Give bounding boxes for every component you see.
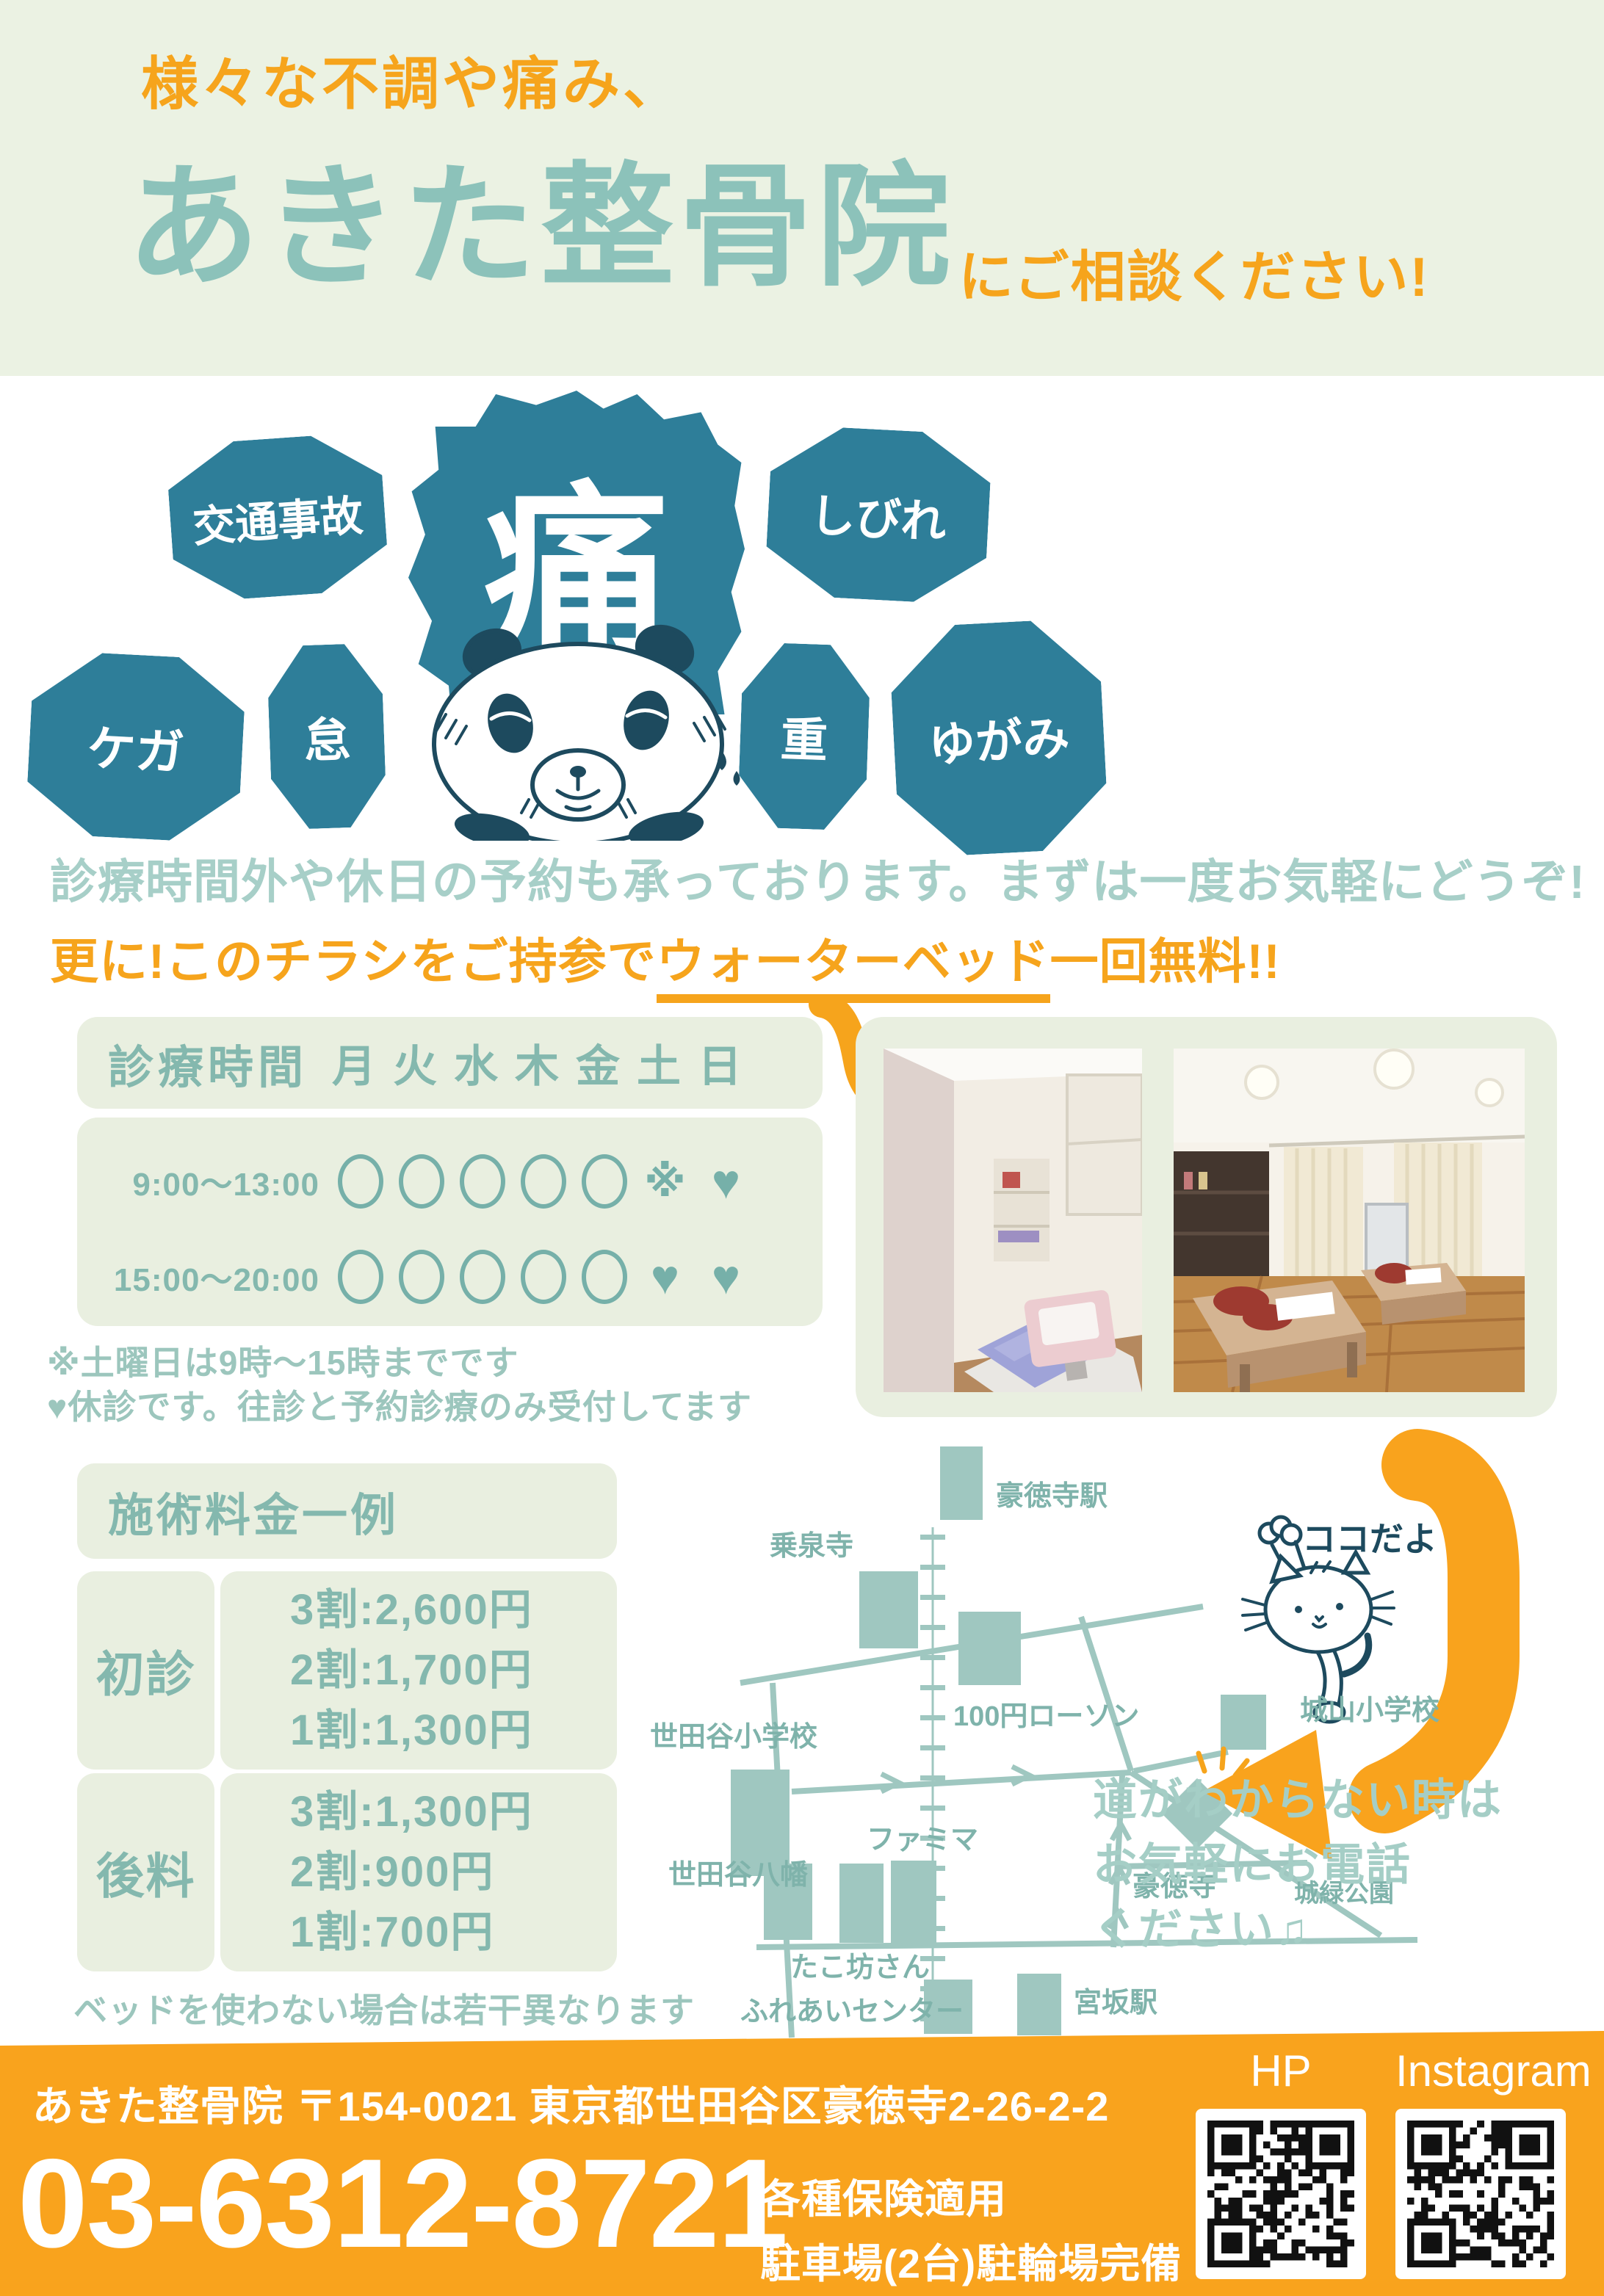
schedule-marks: ※♥ — [330, 1137, 756, 1226]
schedule-note-1: ※土曜日は9時〜15時までです — [47, 1341, 752, 1385]
schedule-day: 日 — [694, 1017, 745, 1109]
closed-heart-mark: ♥ — [696, 1137, 756, 1226]
header-band: 様々な不調や痛み、 あきた整骨院 にご相談ください! — [0, 0, 1604, 376]
koko-dayo-label: ココだよ — [1302, 1520, 1437, 1558]
open-day-mark — [391, 1137, 452, 1226]
pricing-title: 施術料金一例 — [108, 1478, 399, 1544]
schedule-card-header: 診療時間 月火水木金土日 — [77, 1017, 823, 1109]
clinic-photo-waterbed — [884, 1049, 1142, 1392]
intro-line-1: 診療時間外や休日の予約も承っております。まずは一度お気軽にどうぞ! — [50, 844, 1586, 912]
intro-line-2-prefix: 更に!このチラシをご持参で — [50, 934, 657, 988]
map-label-gotokuji-station: 豪徳寺駅 — [996, 1481, 1108, 1512]
pricing-row-followup: 後料 3割:1,300円 2割:900円 1割:700円 — [77, 1773, 617, 1971]
open-day-mark — [330, 1137, 391, 1226]
badge-heaviness: 重 — [737, 642, 872, 831]
schedule-day: 土 — [633, 1017, 684, 1109]
pricing-row-first-visit: 初診 3割:2,600円 2割:1,700円 1割:1,300円 — [77, 1571, 617, 1770]
open-day-mark — [574, 1232, 635, 1322]
schedule-marks: ♥♥ — [330, 1232, 756, 1322]
pricing-label: 初診 — [77, 1571, 214, 1770]
instagram-label: Instagram — [1395, 2046, 1566, 2096]
tagline: 様々な不調や痛み、 — [141, 38, 683, 120]
consult-suffix: にご相談ください! — [958, 232, 1429, 312]
panda-mascot-illustration — [408, 620, 753, 841]
schedule-day: 火 — [389, 1017, 441, 1109]
pricing-note: ベッドを使わない場合は若干異なります — [73, 1984, 695, 2032]
schedule-row: 15:00〜20:00 ♥♥ — [77, 1232, 823, 1322]
badge-numbness: しびれ — [764, 424, 993, 605]
map-label-setagaya-hachiman: 世田谷八幡 — [668, 1860, 808, 1891]
schedule-day: 木 — [511, 1017, 563, 1109]
open-day-mark — [513, 1137, 574, 1226]
footer-phone: 03-6312-8721 — [18, 2131, 787, 2276]
map-help-text: 道がわからない時は お気軽にお電話 ください♫ — [1093, 1768, 1503, 1962]
map-label-setagaya-elementary: 世田谷小学校 — [650, 1721, 817, 1753]
open-day-mark — [452, 1232, 513, 1322]
map-label-lawson: 100円ローソン — [953, 1701, 1139, 1732]
intro-line-2: 更に!このチラシをご持参でウォーターベッド一回無料!! — [50, 922, 1281, 993]
pricing-header: 施術料金一例 — [77, 1463, 617, 1559]
open-day-mark — [452, 1137, 513, 1226]
pricing-values: 3割:1,300円 2割:900円 1割:700円 — [220, 1773, 617, 1971]
schedule-day: 金 — [572, 1017, 624, 1109]
schedule-day: 月 — [328, 1017, 380, 1109]
clinic-photo-treatment-room — [1174, 1049, 1525, 1392]
closed-heart-mark: ♥ — [635, 1232, 696, 1322]
waterbed-underlined: ウォーターベッド — [657, 934, 1050, 1003]
footer-parking-note: 駐車場(2台)駐輪場完備 — [760, 2231, 1182, 2289]
footer-band: あきた整骨院 〒154-0021 東京都世田谷区豪徳寺2-26-2-2 03-6… — [0, 2028, 1604, 2296]
schedule-time: 15:00〜20:00 — [77, 1253, 330, 1300]
schedule-time: 9:00〜13:00 — [77, 1158, 330, 1205]
clinic-name-title: あきた整骨院 — [126, 119, 955, 312]
schedule-card-body: 9:00〜13:00 ※♥ 15:00〜20:00 ♥♥ — [77, 1118, 823, 1326]
badge-traffic-accident: 交通事故 — [165, 431, 390, 604]
footer-address: あきた整骨院 〒154-0021 東京都世田谷区豪徳寺2-26-2-2 — [32, 2074, 1109, 2133]
schedule-title: 診療時間 — [108, 1017, 308, 1109]
badge-distortion: ゆがみ — [888, 618, 1110, 859]
intro-line-2-suffix: 一回無料!! — [1050, 934, 1281, 988]
open-day-mark — [330, 1232, 391, 1322]
instagram-qr-code — [1395, 2109, 1566, 2279]
open-day-mark — [513, 1232, 574, 1322]
flyer-root: 様々な不調や痛み、 あきた整骨院 にご相談ください! 交通事故 しびれ ケガ 怠… — [0, 0, 1604, 2296]
open-day-mark — [391, 1232, 452, 1322]
map-label-josenji: 乗泉寺 — [770, 1531, 853, 1562]
map-label-famima: ファミマ — [867, 1825, 978, 1855]
schedule-notes: ※土曜日は9時〜15時までです ♥休診です。往診と予約診療のみ受付してます — [47, 1341, 752, 1429]
pricing-values: 3割:2,600円 2割:1,700円 1割:1,300円 — [220, 1571, 617, 1770]
hp-label: HP — [1196, 2046, 1366, 2096]
map-label-fureai-center: ふれあいセンター — [740, 1996, 964, 2027]
map-label-takobo: たこ坊さん — [790, 1952, 930, 1983]
schedule-note-2: ♥休診です。往診と予約診療のみ受付してます — [47, 1385, 752, 1429]
badge-dullness: 怠 — [267, 642, 388, 830]
map-label-miyasaka-station: 宮坂駅 — [1074, 1988, 1157, 2018]
photos-card — [856, 1017, 1557, 1417]
saturday-note-mark: ※ — [635, 1137, 696, 1226]
schedule-row: 9:00〜13:00 ※♥ — [77, 1137, 823, 1226]
closed-heart-mark: ♥ — [696, 1232, 756, 1322]
schedule-day: 水 — [450, 1017, 502, 1109]
map-label-shiroyama-elementary: 城山小学校 — [1300, 1695, 1439, 1726]
badge-injury: ケガ — [25, 650, 248, 844]
footer-insurance-note: 各種保険適用 — [760, 2166, 1007, 2225]
open-day-mark — [574, 1137, 635, 1226]
hp-qr-code — [1196, 2109, 1366, 2279]
pricing-label: 後料 — [77, 1773, 214, 1971]
